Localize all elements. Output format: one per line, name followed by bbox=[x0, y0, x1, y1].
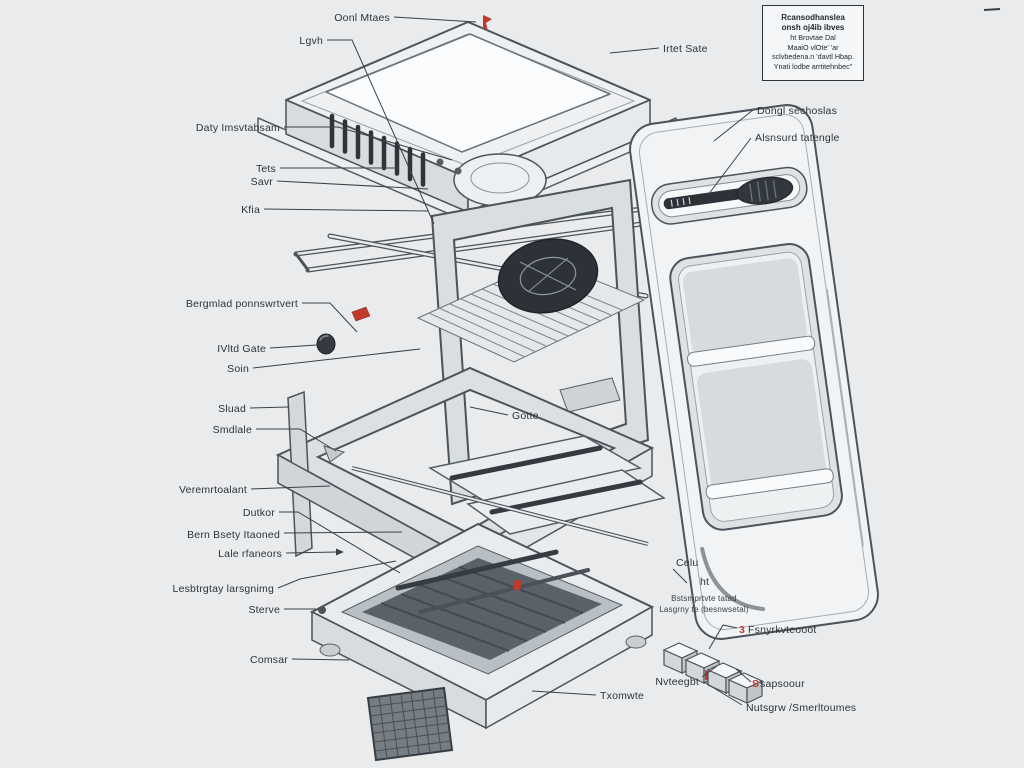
part-label-small: Bstsmprtvte tatad bbox=[671, 594, 737, 603]
part-label: Tets bbox=[256, 163, 276, 175]
part-label: Savr bbox=[251, 176, 274, 188]
note-box-title-line: onsh oj4ib ibves bbox=[763, 23, 863, 33]
red-component bbox=[352, 307, 370, 321]
part-label: Bergmlad ponnswrtvert bbox=[186, 298, 298, 310]
part-label: Nutsgrw /Smerltoumes bbox=[746, 702, 856, 714]
button-dot bbox=[437, 159, 444, 166]
part-label: Daty Imsvtabsam bbox=[196, 122, 280, 134]
part-label: Oonl Mtaes bbox=[334, 12, 390, 24]
part-label: Nvteegbt bbox=[655, 676, 699, 688]
small-bracket bbox=[560, 378, 620, 412]
part-label: Fsnyrkvteooot bbox=[748, 624, 817, 636]
part-label: Smdlale bbox=[213, 424, 252, 436]
diagram-canvas: Oonl Mtaes Lgvh Daty Imsvtabsam Tets Sav… bbox=[0, 0, 1024, 768]
latch-knob bbox=[317, 334, 335, 354]
screw bbox=[318, 606, 326, 614]
note-box-title-line: Rcansodhanslea bbox=[763, 13, 863, 23]
note-box-line: MaaiO vlOte' 'ar bbox=[763, 43, 863, 53]
top-right-dash bbox=[984, 9, 1000, 10]
part-label: Lgvh bbox=[299, 35, 323, 47]
part-label: sapsoour bbox=[760, 678, 805, 690]
button-dot bbox=[455, 168, 462, 175]
note-box: Rcansodhanslea onsh oj4ib ibves ht Brovt… bbox=[762, 5, 864, 81]
part-label: Celu bbox=[676, 557, 698, 569]
leader-arrowhead bbox=[336, 549, 344, 556]
part-label: Sluad bbox=[218, 403, 246, 415]
foot bbox=[320, 644, 340, 656]
door-bin-2 bbox=[696, 358, 827, 491]
part-label: Irtet Sate bbox=[663, 43, 708, 55]
part-label: Sterve bbox=[248, 604, 280, 616]
part-label: Lesbtrgtay larsgnimg bbox=[173, 583, 274, 595]
part-label: Comsar bbox=[250, 654, 288, 666]
part-label: Soin bbox=[227, 363, 249, 375]
note-box-line: Ynati lodbe arrtitehnbec" bbox=[763, 62, 863, 72]
part-label: Bern Bsety Itaoned bbox=[187, 529, 280, 541]
part-label: IVltd Gate bbox=[217, 343, 266, 355]
part-label: Gotte bbox=[512, 410, 539, 422]
part-label-red-prefix: S bbox=[752, 678, 759, 690]
part-label-small: Lasgrny te (besnwsetal) bbox=[659, 605, 749, 614]
note-box-line: sclvbedena.n 'davtl Hbap. bbox=[763, 52, 863, 62]
part-label: Veremrtoalant bbox=[179, 484, 247, 496]
part-label: Txomwte bbox=[600, 690, 644, 702]
part-label: Lale rfaneors bbox=[218, 548, 282, 560]
part-label: Kfia bbox=[241, 204, 260, 216]
part-label: Alsnsurd tatengle bbox=[755, 132, 840, 144]
door-assembly bbox=[627, 102, 882, 643]
note-box-line: ht Brovtae Dal bbox=[763, 33, 863, 43]
battery-pack bbox=[664, 643, 762, 703]
foot bbox=[626, 636, 646, 648]
part-label: ht bbox=[700, 576, 709, 588]
exploded-diagram-illustration: Oonl Mtaes Lgvh Daty Imsvtabsam Tets Sav… bbox=[0, 0, 1024, 768]
filter-panel bbox=[368, 688, 452, 760]
part-label-red-prefix: 3 bbox=[739, 624, 745, 636]
part-label: Dongl sechoslas bbox=[757, 105, 837, 117]
red-dot-part bbox=[513, 580, 521, 591]
part-label: Dutkor bbox=[243, 507, 275, 519]
